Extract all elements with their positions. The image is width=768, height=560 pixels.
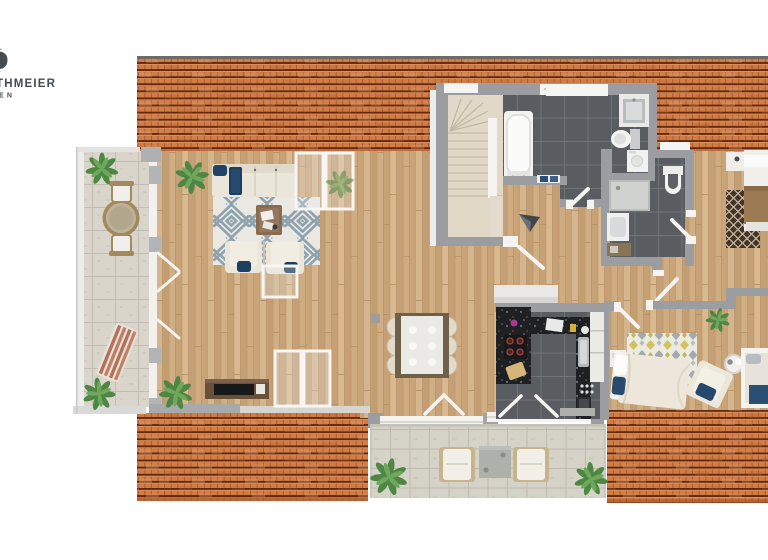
svg-text:EN: EN <box>0 93 15 100</box>
svg-text:THMEIER: THMEIER <box>0 78 56 90</box>
